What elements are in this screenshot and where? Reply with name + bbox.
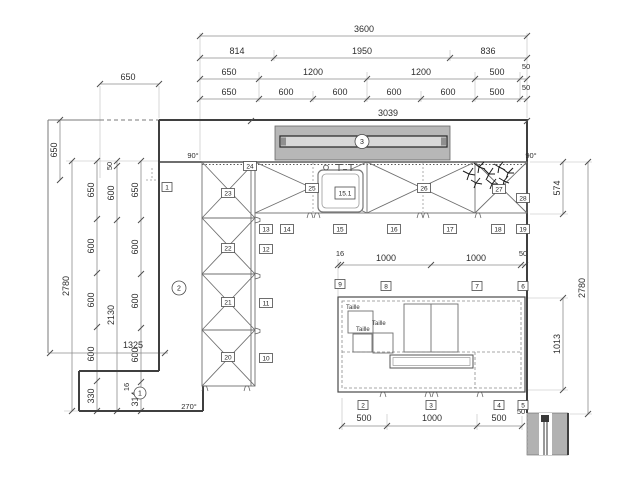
label-square-17: 17 (444, 225, 457, 234)
svg-text:10: 10 (262, 355, 270, 362)
outer-boundary (48, 120, 159, 353)
dim-value: 650 (49, 142, 59, 157)
dim-value: 600 (278, 87, 293, 97)
label-square-25: 25 (306, 184, 319, 193)
dim-value: 814 (229, 46, 244, 56)
svg-text:22: 22 (224, 245, 232, 252)
dim-top-total: 3600 (197, 24, 530, 39)
dim-value: 1325 (123, 340, 143, 350)
label-square-4: 4 (494, 401, 504, 410)
dim-window-width: 3039 (248, 108, 530, 124)
label-square-3: 3 (426, 401, 436, 410)
label-square-9: 9 (335, 280, 345, 289)
dim-value: 650 (221, 87, 236, 97)
label-square-1: 1 (162, 183, 172, 192)
dim-value: 500 (489, 87, 504, 97)
dim-value: 650 (86, 182, 96, 197)
dim-value: 600 (130, 293, 140, 308)
svg-text:2: 2 (361, 402, 365, 409)
dim-left-650: 650 (49, 117, 63, 183)
svg-text:8: 8 (384, 283, 388, 290)
size-tag-2: Taille (372, 321, 386, 327)
svg-text:7: 7 (475, 283, 479, 290)
svg-text:20: 20 (224, 354, 232, 361)
label-square-13: 13 (260, 225, 273, 234)
dim-right-2780: 2780 (577, 159, 591, 417)
svg-text:17: 17 (446, 226, 454, 233)
dim-left-chain-c: 650 600 600 600 330 (86, 158, 100, 414)
svg-text:28: 28 (519, 195, 527, 202)
svg-text:1: 1 (165, 184, 169, 191)
dim-value: 2780 (577, 278, 587, 298)
label-square-7: 7 (472, 282, 482, 291)
dim-value: 1000 (466, 253, 486, 263)
dim-value: 1950 (352, 46, 372, 56)
dim-value: 600 (86, 346, 96, 361)
dim-value: 16 (336, 249, 344, 258)
svg-text:19: 19 (519, 226, 527, 233)
svg-text:21: 21 (224, 299, 232, 306)
dim-value: 50 (522, 62, 530, 71)
dim-value: 600 (130, 239, 140, 254)
label-square-21: 21 (222, 298, 235, 307)
label-square-5: 5 (518, 401, 528, 410)
dim-left-2780: 2780 (61, 158, 75, 414)
svg-text:26: 26 (420, 185, 428, 192)
svg-text:12: 12 (262, 246, 270, 253)
island-drawer (390, 355, 473, 368)
kitchen-floorplan-drawing: 3600 814 1950 836 650 1200 1200 500 50 6… (0, 0, 620, 496)
counter-run (255, 162, 527, 213)
label-circle-1: 1 (134, 387, 146, 399)
dim-value: 600 (440, 87, 455, 97)
dim-value: 3600 (354, 24, 374, 34)
label-square-20: 20 (222, 353, 235, 362)
angle-top-left: 90° (187, 151, 198, 160)
label-square-8: 8 (381, 282, 391, 291)
dim-right-1013: 1013 (552, 295, 566, 393)
label-square-23: 23 (222, 189, 235, 198)
dim-value: 1200 (411, 67, 431, 77)
dim-value: 500 (489, 67, 504, 77)
label-square-6: 6 (518, 282, 528, 291)
dim-value: 2780 (61, 276, 71, 296)
label-circle-3: 3 (355, 135, 369, 149)
window-bar-end-left (281, 138, 286, 146)
label-square-19: 19 (517, 225, 530, 234)
dim-value: 3039 (378, 108, 398, 118)
angle-bottom: 270° (181, 402, 197, 411)
svg-text:6: 6 (521, 283, 525, 290)
dim-left-chain-d: 50 600 2130 (105, 158, 120, 414)
dim-value: 650 (130, 182, 140, 197)
size-tag-3: Taille (356, 327, 370, 333)
svg-text:9: 9 (338, 281, 342, 288)
dim-value: 500 (356, 413, 371, 423)
label-square-28: 28 (517, 194, 530, 203)
window-bar-end-right (441, 138, 446, 146)
dim-value: 2130 (106, 305, 116, 325)
svg-text:3: 3 (360, 139, 364, 146)
label-circle-2: 2 (172, 281, 186, 295)
dim-value: 600 (386, 87, 401, 97)
label-square-18: 18 (492, 225, 505, 234)
label-square-16: 16 (388, 225, 401, 234)
dim-top-row4: 650 600 600 600 600 500 50 (197, 83, 530, 102)
label-square-15: 15 (334, 225, 347, 234)
label-square-22: 22 (222, 244, 235, 253)
dim-value: 50 (105, 162, 114, 170)
dim-left-1325: 1325 (47, 340, 168, 356)
svg-text:5: 5 (521, 402, 525, 409)
plant-icon (463, 162, 514, 189)
label-square-2: 2 (358, 401, 368, 410)
dim-value: 600 (106, 185, 116, 200)
sink-label-text: 15.1 (339, 191, 352, 198)
dim-value: 600 (332, 87, 347, 97)
svg-text:25: 25 (308, 185, 316, 192)
svg-text:2: 2 (177, 286, 181, 293)
svg-text:13: 13 (262, 226, 270, 233)
svg-text:15: 15 (336, 226, 344, 233)
label-square-12: 12 (260, 245, 273, 254)
label-square-10: 10 (260, 354, 273, 363)
dim-value: 330 (86, 388, 96, 403)
dim-value: 16 (122, 383, 131, 391)
dim-left-chain-e: 650 600 600 600 16 314 (122, 158, 144, 414)
dim-top-left-offset: 650 (97, 72, 162, 87)
dim-value: 1013 (552, 334, 562, 354)
dim-value: 50 (522, 83, 530, 92)
island: Taille Taille Taille (338, 297, 525, 392)
label-square-14: 14 (281, 225, 294, 234)
angle-top-right: 90° (525, 151, 536, 160)
dim-value: 600 (86, 292, 96, 307)
size-tag-1: Taille (346, 305, 360, 311)
svg-text:4: 4 (497, 402, 501, 409)
dim-top-row3: 650 1200 1200 500 50 (197, 62, 530, 82)
dim-value: 650 (120, 72, 135, 82)
svg-text:18: 18 (494, 226, 502, 233)
svg-text:14: 14 (283, 226, 291, 233)
svg-text:3: 3 (429, 402, 433, 409)
dim-value: 50 (519, 249, 527, 258)
label-square-24: 24 (244, 162, 257, 171)
svg-text:16: 16 (390, 226, 398, 233)
dim-value: 1000 (422, 413, 442, 423)
svg-text:1: 1 (138, 391, 142, 398)
dim-value: 500 (491, 413, 506, 423)
dim-value: 836 (480, 46, 495, 56)
dim-value: 600 (86, 238, 96, 253)
dim-bottom-island: 500 1000 500 50 (339, 407, 525, 429)
label-square-11: 11 (260, 299, 273, 308)
floorplan-canvas: 3600 814 1950 836 650 1200 1200 500 50 6… (0, 0, 620, 496)
svg-text:24: 24 (246, 163, 254, 170)
dim-value: 650 (221, 67, 236, 77)
dim-top-row2: 814 1950 836 (197, 46, 530, 61)
label-square-26: 26 (418, 184, 431, 193)
svg-text:11: 11 (263, 300, 270, 307)
svg-text:23: 23 (224, 190, 232, 197)
label-square-27: 27 (493, 185, 506, 194)
dim-value: 574 (552, 180, 562, 195)
door (527, 413, 568, 455)
dim-right-574: 574 (552, 159, 566, 217)
sink-label: 15.1 (335, 187, 355, 199)
dim-value: 1200 (303, 67, 323, 77)
dim-mid-island: 16 1000 1000 50 (335, 249, 528, 268)
dim-value: 1000 (376, 253, 396, 263)
svg-text:27: 27 (495, 186, 503, 193)
